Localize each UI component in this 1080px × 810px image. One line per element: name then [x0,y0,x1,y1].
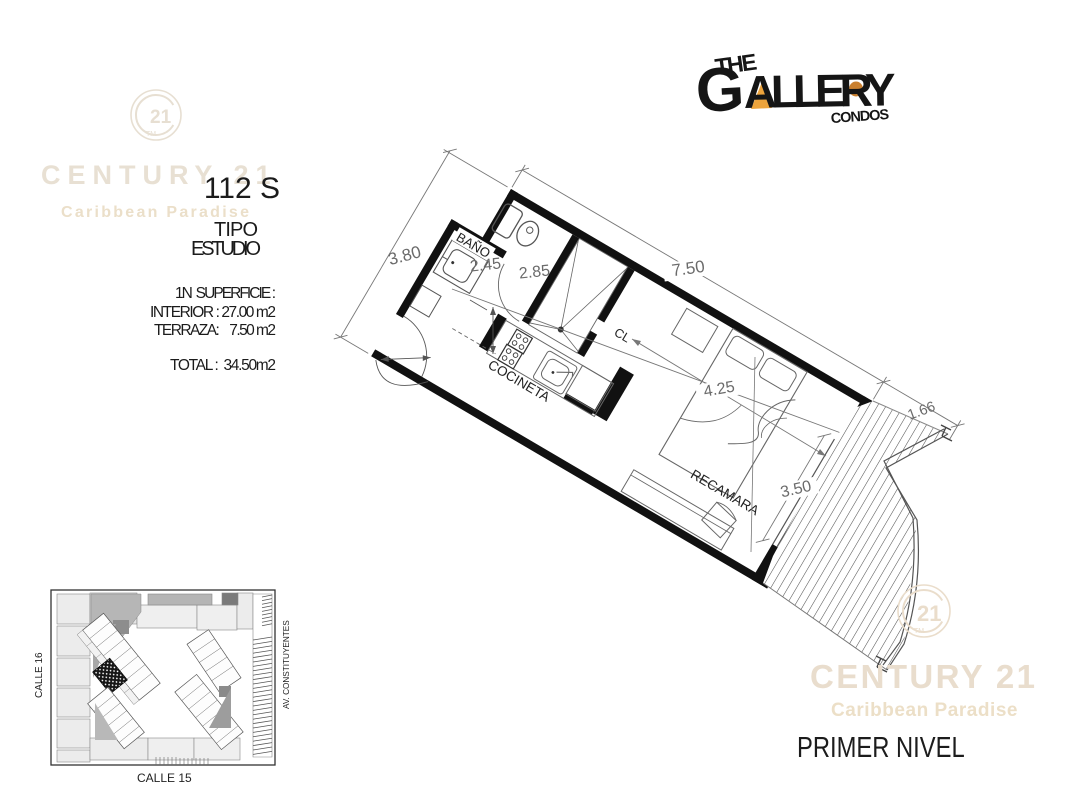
svg-text:PRIMER NIVEL: PRIMER NIVEL [797,731,965,764]
svg-text:INTERIOR : 27.00 m2: INTERIOR : 27.00 m2 [150,304,276,321]
svg-text:CENTURY 21: CENTURY 21 [810,658,1038,695]
svg-text:ESTUDIO: ESTUDIO [191,238,261,260]
svg-text:21: 21 [917,601,941,626]
svg-text:112 S: 112 S [204,172,280,205]
svg-text:Caribbean Paradise: Caribbean Paradise [831,700,1019,721]
svg-text:2.45: 2.45 [469,255,502,275]
svg-text:CALLE 15: CALLE 15 [137,771,192,785]
svg-text:G: G [694,55,746,126]
svg-text:21: 21 [150,107,172,128]
svg-text:TERRAZA: 7.50 m2: TERRAZA: 7.50 m2 [154,322,276,339]
svg-text:CALLE 16: CALLE 16 [34,652,45,698]
svg-text:AV. CONSTITUYENTES: AV. CONSTITUYENTES [282,620,291,709]
svg-text:TOTAL : 34.50m2: TOTAL : 34.50m2 [170,357,276,374]
svg-text:TM: TM [146,131,156,138]
svg-text:1N SUPERFICIE :: 1N SUPERFICIE : [175,285,276,302]
svg-text:2.85: 2.85 [518,262,551,282]
svg-text:TM: TM [914,628,924,635]
